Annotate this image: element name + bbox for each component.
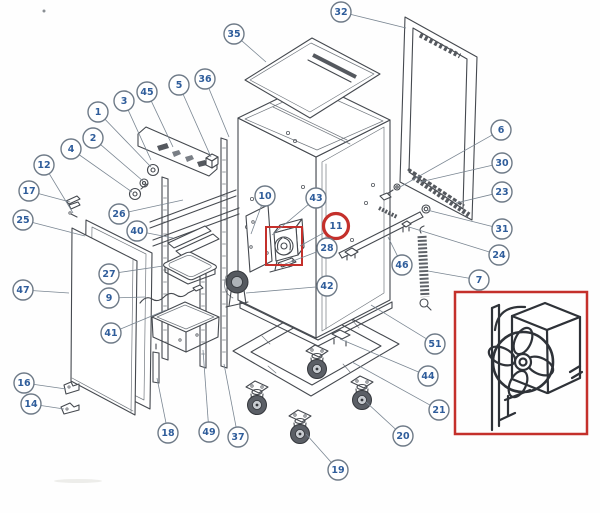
hinge-pin [153,344,159,383]
callout-46: 46 [388,237,412,275]
diagram-canvas: 1234567910111214161718192021232425262728… [0,0,600,513]
balloon-number: 45 [140,87,153,98]
balloon-number: 32 [334,7,347,18]
callout-2: 2 [83,128,143,181]
caster-front [289,410,311,444]
callout-16: 16 [14,373,66,393]
balloon-number: 11 [329,221,342,232]
balloon-number: 30 [495,158,509,169]
balloon-number: 47 [16,285,29,296]
balloon-number: 21 [432,405,445,416]
balloon-number: 49 [202,427,215,438]
leader-line [351,14,406,28]
leader-line [33,222,85,236]
callout-19: 19 [306,434,348,480]
callout-20: 20 [366,402,413,446]
callout-47: 47 [13,280,69,300]
callout-40: 40 [127,221,173,241]
balloon-number: 28 [320,243,334,254]
balloon-number: 19 [331,465,344,476]
leader-line [33,291,69,293]
balloon-number: 5 [176,80,183,91]
callout-17: 17 [19,181,70,202]
balloon-number: 40 [130,226,144,237]
balloon-number: 9 [106,293,113,304]
door-glass-frame [400,17,477,220]
drip-pan [164,252,217,284]
balloon-number: 51 [428,339,441,350]
caster-right [351,376,373,410]
callout-37: 37 [224,364,248,447]
callout-35: 35 [224,24,266,62]
control-knobs [130,165,159,200]
leader-line [157,378,166,423]
balloon-number: 31 [495,224,508,235]
balloon-number: 25 [16,215,29,226]
rail-b-holes [223,148,226,352]
leader-line [129,200,183,212]
balloon-number: 4 [68,144,75,155]
balloon-number: 6 [498,125,505,136]
balloon-number: 42 [320,281,333,292]
leader-line [209,88,229,137]
balloon-number: 24 [492,250,506,261]
balloon-number: 2 [90,133,97,144]
balloon-number: 26 [112,209,126,220]
balloon-number: 12 [37,160,50,171]
rack-rails [150,138,239,368]
balloon-number: 41 [104,328,117,339]
callout-18: 18 [157,378,178,443]
balloon-number: 10 [258,191,272,202]
leader-line [79,155,132,192]
callout-14: 14 [21,394,64,414]
coil-element [420,226,431,310]
balloon-number: 17 [22,186,35,197]
balloon-number: 3 [121,96,128,107]
balloon-number: 16 [17,378,31,389]
balloon-number: 36 [198,74,212,85]
leader-line [101,145,143,181]
leader-line [49,174,73,213]
balloon-number: 35 [227,29,240,40]
balloon-number: 44 [421,371,435,382]
balloon-number: 46 [395,260,409,271]
leader-line [34,384,66,389]
caster-left [246,381,268,415]
callout-7: 7 [428,270,489,290]
balloon-number: 18 [161,428,175,439]
callout-12: 12 [34,155,73,213]
leader-line [306,434,331,463]
balloon-number: 1 [95,107,102,118]
leader-line [366,402,396,429]
balloon-number: 14 [24,399,38,410]
leader-line [428,271,469,278]
hardware-top-left [66,196,80,217]
inset-detail [486,303,582,430]
leader-line [39,194,70,202]
fan-mounting-plate [246,205,272,272]
leader-line [242,41,266,62]
callout-49: 49 [199,350,219,442]
balloon-number: 20 [396,431,410,442]
callout-36: 36 [195,69,229,137]
door-panel [71,228,137,415]
balloon-number: 23 [495,187,508,198]
balloon-number: 7 [476,275,483,286]
balloon-number: 43 [309,193,322,204]
balloon-number: 27 [102,269,115,280]
leader-line [224,364,236,427]
callout-32: 32 [331,2,406,28]
balloon-number: 37 [231,432,244,443]
